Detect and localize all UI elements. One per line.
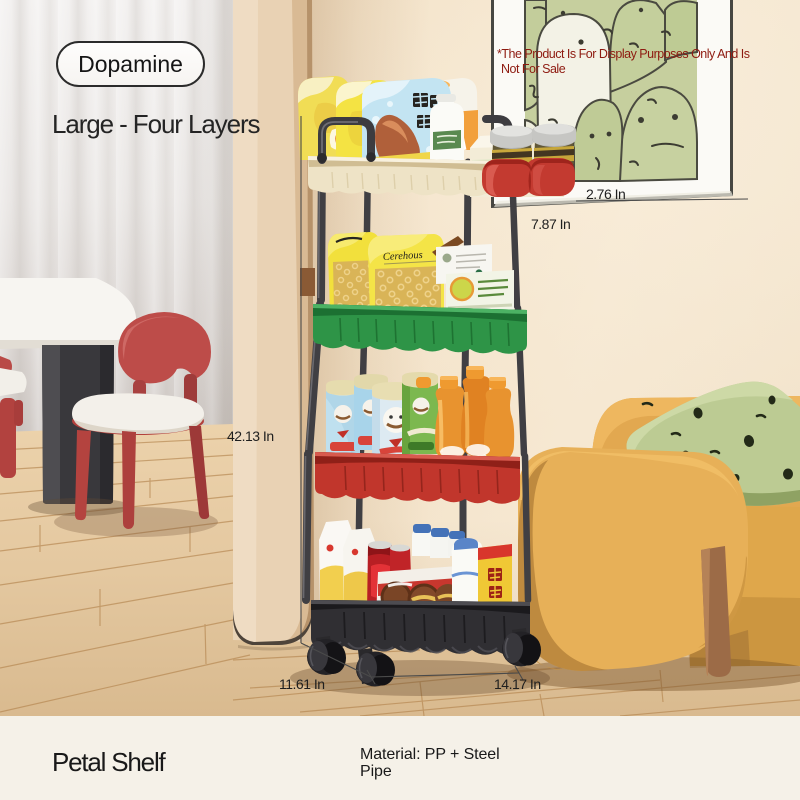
svg-text:Cerehous: Cerehous: [383, 250, 423, 263]
